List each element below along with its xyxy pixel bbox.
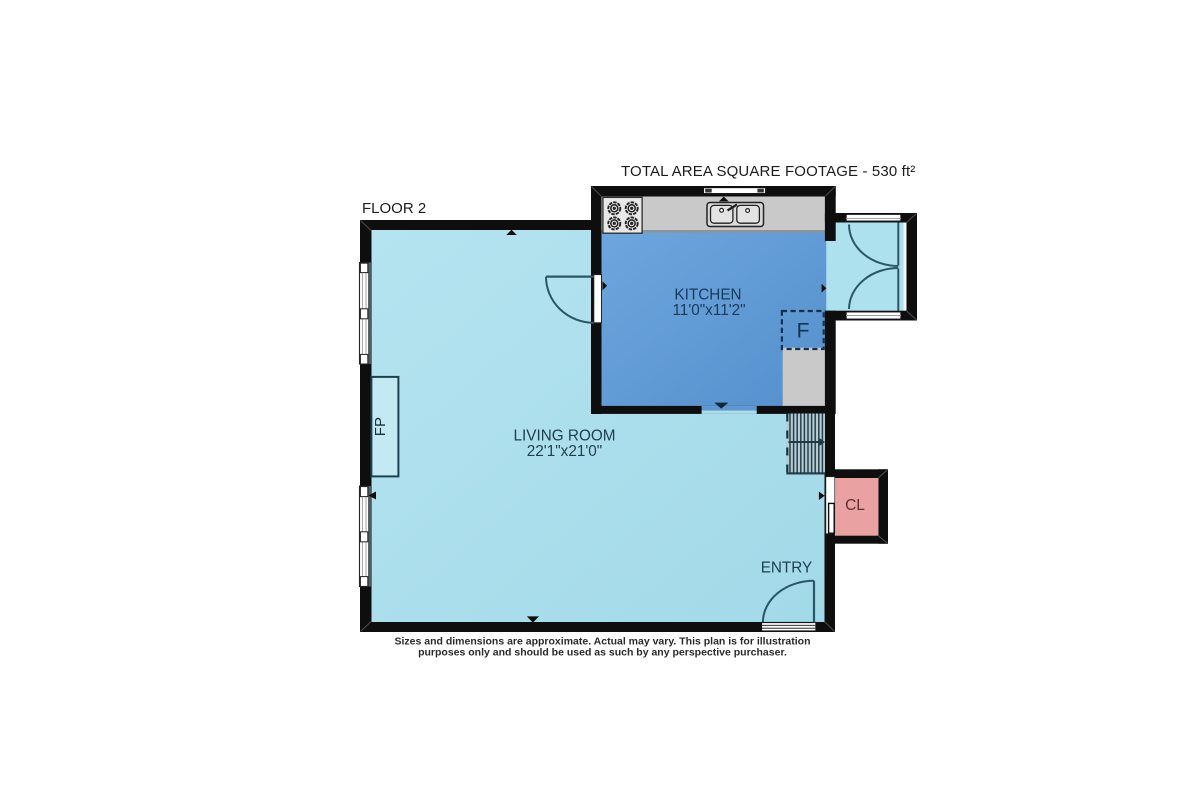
svg-text:LIVING ROOM: LIVING ROOM <box>514 427 616 444</box>
svg-text:22'1"x21'0": 22'1"x21'0" <box>527 443 602 460</box>
svg-text:KITCHEN: KITCHEN <box>674 286 741 303</box>
svg-text:Sizes and dimensions are appro: Sizes and dimensions are approximate. Ac… <box>394 635 810 647</box>
svg-text:FP: FP <box>372 417 389 436</box>
svg-text:ENTRY: ENTRY <box>761 560 813 577</box>
svg-text:F: F <box>797 319 810 342</box>
svg-text:purposes only and should be us: purposes only and should be used as such… <box>418 647 787 659</box>
svg-text:FLOOR 2: FLOOR 2 <box>362 200 426 217</box>
svg-text:CL: CL <box>845 497 865 514</box>
svg-text:TOTAL AREA SQUARE FOOTAGE - 53: TOTAL AREA SQUARE FOOTAGE - 530 ft² <box>621 163 915 180</box>
svg-text:11'0"x11'2": 11'0"x11'2" <box>672 302 745 319</box>
